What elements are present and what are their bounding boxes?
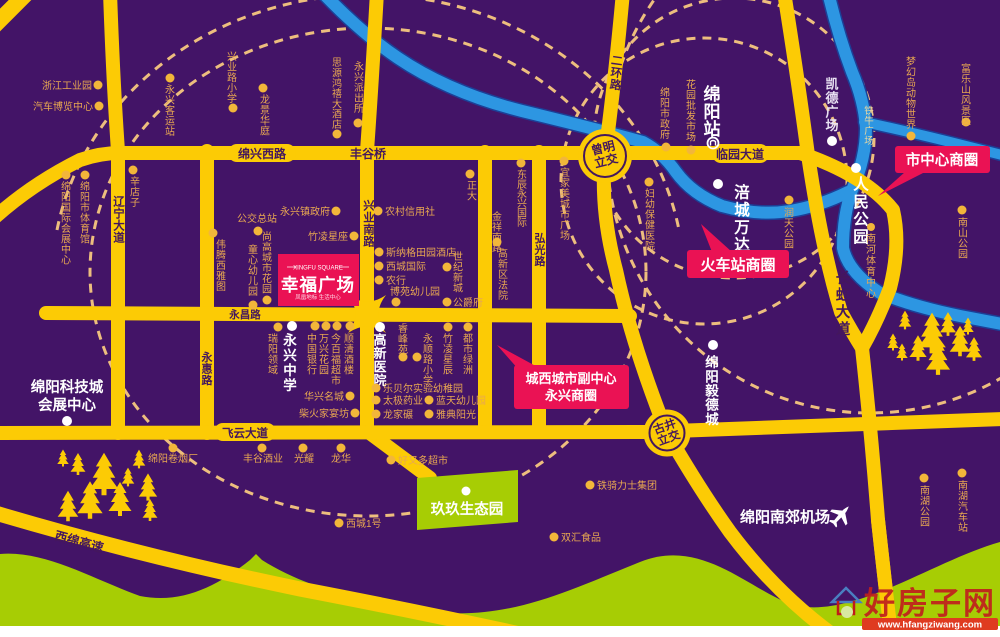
svg-text:西城1号: 西城1号 bbox=[346, 518, 382, 530]
svg-text:花园批发市场: 花园批发市场 bbox=[686, 78, 696, 144]
svg-text:西城国际: 西城国际 bbox=[386, 261, 426, 273]
svg-text:南河体育中心: 南河体育中心 bbox=[866, 232, 876, 300]
svg-text:丰谷酒业: 丰谷酒业 bbox=[243, 452, 283, 465]
svg-text:光耀: 光耀 bbox=[294, 452, 314, 465]
svg-text:绵阳科技城: 绵阳科技城 bbox=[31, 378, 104, 396]
svg-text:中国银行: 中国银行 bbox=[307, 332, 317, 377]
svg-text:绵阳国际会展中心: 绵阳国际会展中心 bbox=[61, 180, 71, 267]
svg-text:浙江工业园: 浙江工业园 bbox=[42, 80, 92, 92]
svg-text:玖玖生态园: 玖玖生态园 bbox=[431, 500, 504, 518]
svg-text:会展中心: 会展中心 bbox=[38, 396, 96, 414]
svg-text:丰谷桥: 丰谷桥 bbox=[350, 146, 387, 161]
svg-text:农村信用社: 农村信用社 bbox=[385, 205, 435, 218]
svg-text:富乐山风景区: 富乐山风景区 bbox=[961, 62, 971, 128]
svg-text:龙华: 龙华 bbox=[331, 452, 351, 465]
svg-text:童心幼儿园: 童心幼儿园 bbox=[248, 243, 258, 298]
svg-text:农行: 农行 bbox=[386, 274, 406, 287]
svg-text:绵阳毅德城: 绵阳毅德城 bbox=[704, 354, 719, 427]
svg-text:南湖汽车站: 南湖汽车站 bbox=[958, 479, 968, 534]
svg-text:思源鸿禧大酒店: 思源鸿禧大酒店 bbox=[332, 57, 342, 131]
svg-text:城西城市副中心: 城西城市副中心 bbox=[525, 371, 616, 386]
svg-text:永兴客运站: 永兴客运站 bbox=[165, 83, 175, 138]
svg-text:绵阳市体育馆: 绵阳市体育馆 bbox=[80, 180, 90, 246]
svg-text:铁牛广场: 铁牛广场 bbox=[864, 105, 874, 147]
svg-text:永惠路: 永惠路 bbox=[201, 350, 214, 387]
svg-text:龙家碾: 龙家碾 bbox=[383, 408, 413, 421]
svg-text:竹凌星座: 竹凌星座 bbox=[308, 230, 348, 243]
svg-text:永兴镇政府: 永兴镇政府 bbox=[280, 205, 330, 218]
svg-text:永兴中学: 永兴中学 bbox=[283, 332, 297, 393]
svg-text:长虹大道: 长虹大道 bbox=[836, 269, 851, 338]
svg-text:宜家美城市广场: 宜家美城市广场 bbox=[560, 166, 570, 242]
svg-text:绵阳南郊机场: 绵阳南郊机场 bbox=[740, 508, 830, 526]
svg-text:柴火家宴坊: 柴火家宴坊 bbox=[299, 407, 349, 420]
svg-text:金祥南路: 金祥南路 bbox=[492, 210, 502, 255]
svg-text:顺清酒楼: 顺清酒楼 bbox=[344, 333, 354, 377]
svg-text:龙景华庭: 龙景华庭 bbox=[260, 93, 270, 138]
svg-text:好又多超市: 好又多超市 bbox=[398, 454, 448, 467]
svg-text:绵阳卷烟厂: 绵阳卷烟厂 bbox=[148, 452, 198, 465]
svg-text:太极药业: 太极药业 bbox=[383, 394, 423, 407]
svg-text:华兴名城: 华兴名城 bbox=[304, 390, 344, 403]
svg-text:永兴派出所: 永兴派出所 bbox=[354, 60, 364, 115]
svg-text:今百福超市: 今百福超市 bbox=[331, 332, 341, 387]
svg-text:雅典阳光: 雅典阳光 bbox=[436, 408, 476, 421]
svg-text:永顺路小学: 永顺路小学 bbox=[423, 332, 433, 387]
svg-text:永昌路: 永昌路 bbox=[228, 308, 261, 321]
svg-text:妇幼保健医院: 妇幼保健医院 bbox=[645, 187, 655, 253]
svg-text:好房子网: 好房子网 bbox=[863, 586, 996, 621]
svg-text:绵兴西路: 绵兴西路 bbox=[238, 146, 287, 161]
svg-text:弘光路: 弘光路 bbox=[534, 232, 547, 268]
svg-text:绵阳站: 绵阳站 bbox=[704, 84, 721, 139]
svg-text:XINGFU SQUARE: XINGFU SQUARE bbox=[293, 266, 343, 272]
svg-text:飞云大道: 飞云大道 bbox=[222, 426, 268, 440]
svg-text:永兴商圈: 永兴商圈 bbox=[544, 388, 597, 403]
svg-text:涪城万达: 涪城万达 bbox=[733, 183, 750, 255]
svg-text:公爵府: 公爵府 bbox=[453, 296, 483, 309]
svg-text:东辰永兴国际: 东辰永兴国际 bbox=[517, 168, 527, 229]
svg-text:都市绿洲: 都市绿洲 bbox=[463, 333, 473, 377]
svg-text:世纪新城: 世纪新城 bbox=[453, 251, 463, 295]
svg-text:火车站商圈: 火车站商圈 bbox=[700, 256, 775, 274]
svg-text:兴业南路: 兴业南路 bbox=[363, 198, 375, 248]
svg-text:汽车博览中心: 汽车博览中心 bbox=[33, 100, 93, 113]
svg-text:辽宁大道: 辽宁大道 bbox=[113, 195, 125, 244]
svg-text:博苑幼儿园: 博苑幼儿园 bbox=[390, 285, 440, 298]
svg-text:公交总站: 公交总站 bbox=[237, 212, 277, 225]
svg-text:万兴花园: 万兴花园 bbox=[319, 334, 329, 377]
svg-text:南山公园: 南山公园 bbox=[958, 216, 968, 261]
svg-text:凯德广场: 凯德广场 bbox=[825, 77, 838, 133]
svg-text:正大: 正大 bbox=[467, 181, 477, 203]
svg-text:幸福广场: 幸福广场 bbox=[281, 275, 355, 295]
svg-text:梦幻岛动物世界: 梦幻岛动物世界 bbox=[906, 56, 916, 131]
svg-text:高新医院: 高新医院 bbox=[373, 333, 386, 389]
svg-text:睿峰苑: 睿峰苑 bbox=[398, 322, 408, 356]
svg-text:绵阳市政府: 绵阳市政府 bbox=[660, 86, 670, 141]
svg-text:高新区法院: 高新区法院 bbox=[498, 247, 508, 302]
svg-text:铁骑力士集团: 铁骑力士集团 bbox=[597, 479, 657, 492]
svg-text:斯纳格田园酒店: 斯纳格田园酒店 bbox=[386, 246, 456, 259]
svg-text:www.hfangziwang.com: www.hfangziwang.com bbox=[877, 620, 982, 631]
svg-text:润天公园: 润天公园 bbox=[784, 206, 794, 251]
svg-text:瑞阳领域: 瑞阳领域 bbox=[268, 333, 278, 377]
svg-text:辛店子: 辛店子 bbox=[130, 175, 140, 209]
svg-text:双汇食品: 双汇食品 bbox=[561, 531, 601, 544]
svg-text:乐贝尔实验幼稚园: 乐贝尔实验幼稚园 bbox=[383, 382, 463, 395]
svg-text:凤凰地标 生活中心: 凤凰地标 生活中心 bbox=[295, 293, 341, 301]
svg-text:兴业路小学: 兴业路小学 bbox=[227, 51, 237, 105]
svg-text:市中心商圈: 市中心商圈 bbox=[906, 151, 979, 169]
svg-text:伟腾西雅图: 伟腾西雅图 bbox=[216, 238, 226, 293]
svg-text:南湖公园: 南湖公园 bbox=[920, 484, 930, 529]
svg-text:临园大道: 临园大道 bbox=[716, 147, 764, 162]
svg-text:竹凌星辰: 竹凌星辰 bbox=[443, 332, 453, 377]
svg-text:尚高城市花园: 尚高城市花园 bbox=[262, 230, 272, 296]
svg-text:蓝天幼儿园: 蓝天幼儿园 bbox=[436, 394, 486, 407]
